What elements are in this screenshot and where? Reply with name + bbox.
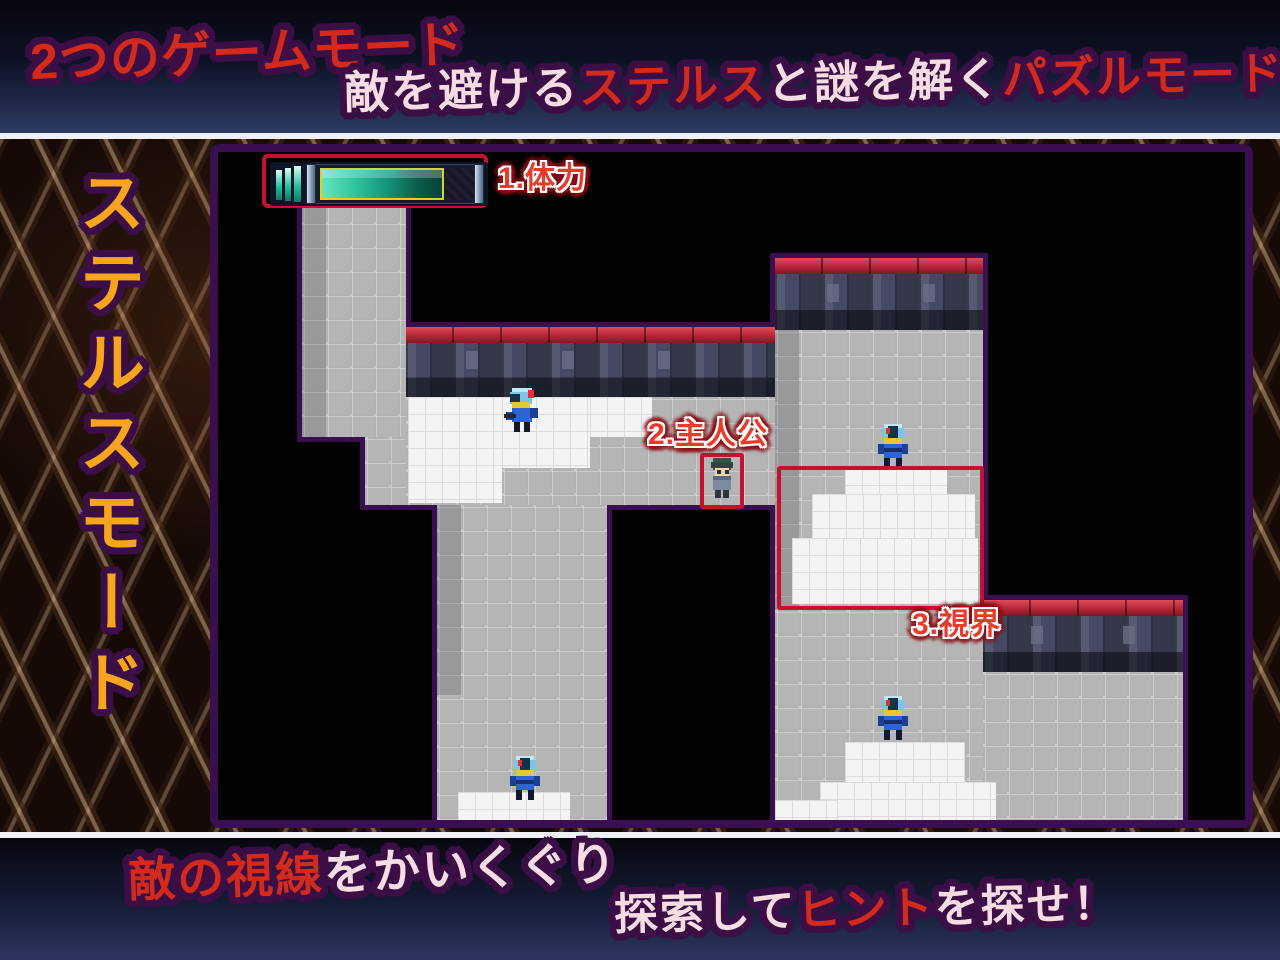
text-segment: 敵を避ける	[344, 62, 580, 118]
enemy-knight-sprite-down	[874, 694, 912, 742]
wall-band-1	[406, 327, 775, 397]
enemy-knight-sprite-down	[506, 754, 544, 802]
hp-shine	[322, 170, 442, 178]
health-highlight-box	[262, 154, 488, 208]
vision-tiles-1	[408, 397, 502, 503]
bottom-text-line-2: 探索してヒントを探せ！	[614, 882, 1120, 937]
vision-tiles-1	[590, 397, 652, 437]
vision-tiles-3	[845, 742, 965, 782]
hp-segment-bar	[285, 168, 291, 201]
text-segment: をかいくぐり	[323, 836, 619, 899]
gauge-bracket-left	[306, 164, 316, 204]
health-gauge	[270, 162, 488, 206]
hp-gauge	[320, 168, 444, 200]
promo-screenshot: { "banner_top": { "line1_segments": [ {"…	[0, 0, 1280, 960]
vision-highlight-rect	[777, 466, 984, 610]
enemy-knight-sprite-left	[504, 386, 542, 434]
wall-red-cap	[983, 600, 1183, 616]
wall-band-2	[775, 258, 983, 330]
callout-protagonist: 2.主人公	[648, 420, 768, 450]
hp-segment-bar	[294, 166, 301, 202]
wall-inset	[658, 351, 670, 369]
vision-tiles-3	[775, 800, 837, 820]
wall-inset	[1123, 626, 1135, 644]
wall-inset	[1031, 626, 1043, 644]
hp-gauge-empty-pattern	[446, 168, 474, 200]
text-segment: と謎を解く	[767, 53, 1003, 109]
wall-inset	[923, 284, 935, 302]
text-segment: を探せ！	[934, 879, 1119, 932]
wall-red-cap	[775, 258, 983, 274]
wall-inset	[466, 351, 478, 369]
wall-red-cap	[406, 327, 775, 343]
gauge-bracket-right	[474, 164, 484, 204]
vision-tiles-3	[820, 782, 996, 820]
text-segment: 敵の視線	[127, 847, 325, 907]
floor-shading	[302, 198, 326, 437]
floor-room-bottom-right	[983, 672, 1183, 820]
protagonist-highlight-box	[700, 453, 744, 509]
floor-shading	[437, 505, 461, 695]
text-segment: 2つの	[29, 29, 162, 90]
hp-segment-bar	[276, 170, 282, 200]
sidebar-vertical-title: ステルスモード	[74, 168, 140, 728]
wall-inset	[827, 284, 839, 302]
callout-health: 1.体力	[498, 164, 587, 194]
game-screenshot-panel: 1.体力 2.主人公 3.視界	[210, 144, 1253, 828]
enemy-knight-sprite-down	[874, 422, 912, 470]
wall-inset	[562, 351, 574, 369]
callout-vision: 3.視界	[912, 610, 1001, 640]
wall-band-3	[983, 600, 1183, 672]
text-segment: ヒント	[796, 883, 935, 935]
text-segment: 探索して	[613, 887, 797, 940]
text-segment: ステルス	[579, 58, 768, 113]
text-segment: パズルモード!!	[1001, 47, 1280, 105]
